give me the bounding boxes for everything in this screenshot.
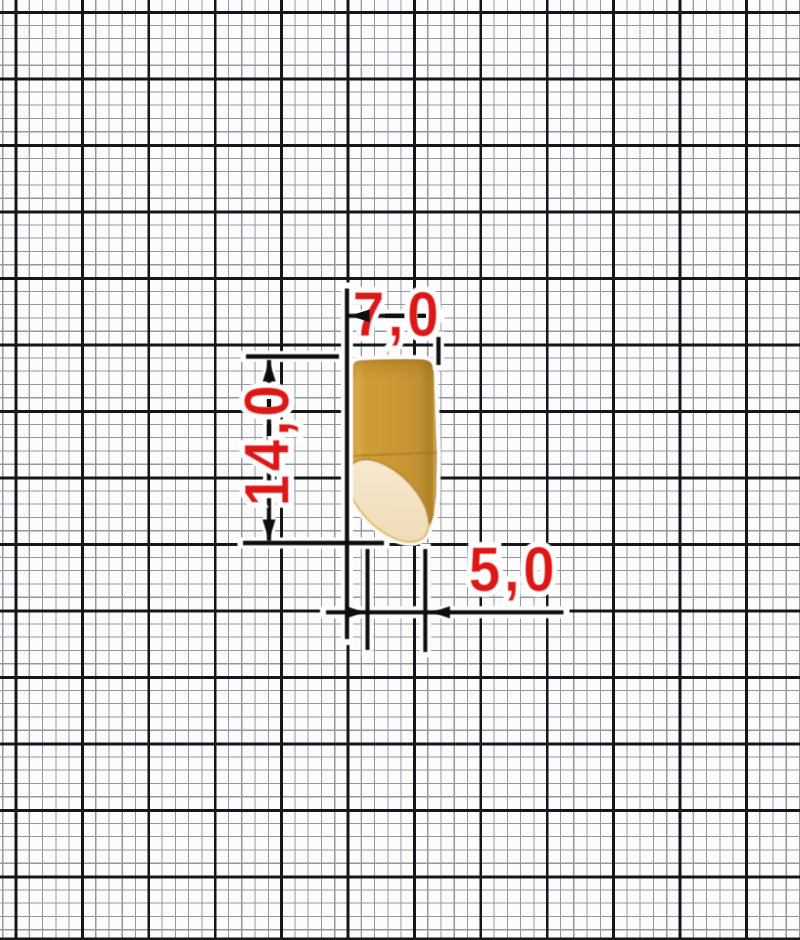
svg-text:5,0: 5,0 [469, 534, 559, 604]
